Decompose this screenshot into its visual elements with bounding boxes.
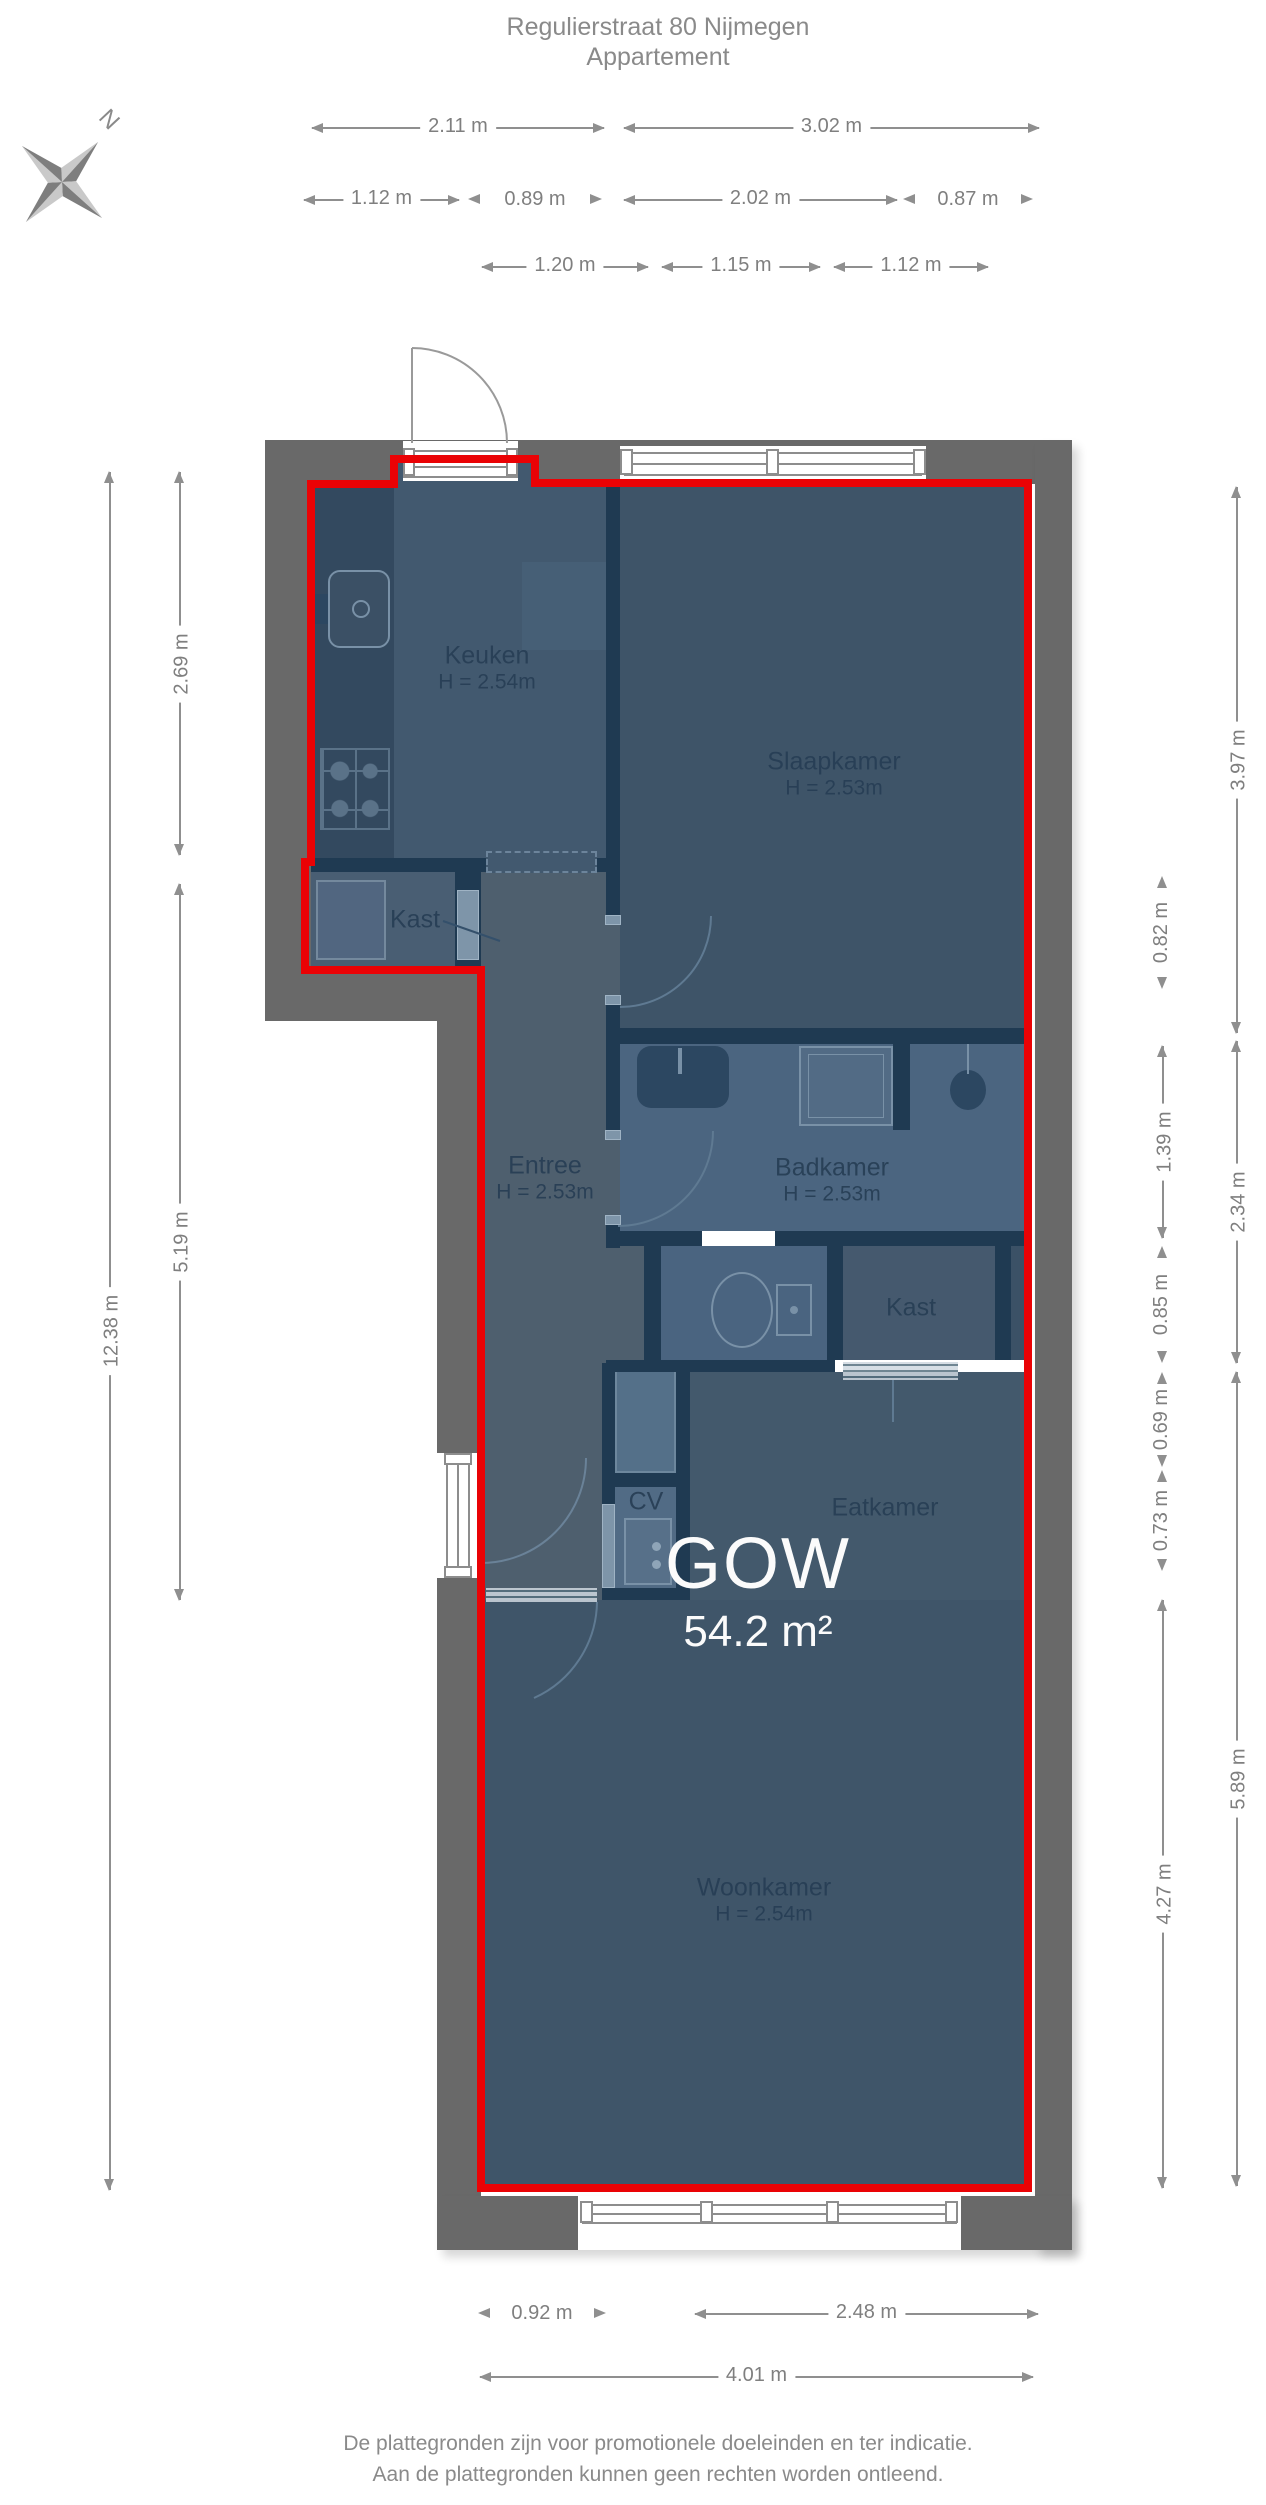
dim-bottom-4-01: 4.01 m bbox=[480, 2376, 1033, 2378]
closet-door bbox=[602, 1504, 615, 1588]
wall-step-block bbox=[265, 966, 481, 1021]
side-door-post-bottom bbox=[444, 1566, 472, 1578]
woonkamer-door-sill bbox=[486, 1588, 597, 1602]
pendant-lamp bbox=[950, 1070, 986, 1110]
page-subtitle: Appartement bbox=[0, 42, 1266, 72]
wall-badkamer-bottom-right bbox=[775, 1231, 1028, 1246]
slaapkamer-door-jamb bbox=[605, 915, 621, 925]
dim-left-12-38: 12.38 m bbox=[109, 472, 111, 2190]
wall-keuken-slaapkamer bbox=[606, 484, 620, 858]
dim-right-3-97: 3.97 m bbox=[1236, 487, 1238, 1033]
label-eatkamer: Eatkamer bbox=[832, 1494, 939, 1523]
title-block: Regulierstraat 80 Nijmegen Appartement bbox=[0, 12, 1266, 72]
woonkamer-window-post4 bbox=[945, 2201, 958, 2223]
entrance-door-sill bbox=[403, 450, 518, 478]
badkamer-door-jamb bbox=[605, 1130, 621, 1140]
kast1-shelf bbox=[316, 880, 386, 960]
keuken-passage-dashed bbox=[486, 851, 597, 873]
wall-left-lower bbox=[437, 1021, 481, 2250]
dim-top-0-89: 0.89 m bbox=[468, 189, 602, 209]
kast1-door bbox=[457, 890, 479, 960]
gow-area-label: GOW 54.2 m² bbox=[665, 1523, 851, 1657]
dim-top-2-11: 2.11 m bbox=[312, 127, 604, 129]
slaapkamer-window-post3 bbox=[913, 449, 926, 475]
dim-left-5-19: 5.19 m bbox=[179, 884, 181, 1600]
wall-slaapkamer-badkamer bbox=[606, 1028, 1028, 1044]
dim-bottom-2-48: 2.48 m bbox=[695, 2313, 1038, 2315]
dim-top-1-15: 1.15 m bbox=[662, 266, 820, 268]
dim-right-0-73: 0.73 m bbox=[1151, 1470, 1173, 1571]
side-door-post-top bbox=[444, 1453, 472, 1465]
slaapkamer-door-gap bbox=[606, 915, 620, 1005]
shower-faucet bbox=[678, 1048, 682, 1074]
dim-right-2-34: 2.34 m bbox=[1236, 1041, 1238, 1363]
label-keuken: Keuken H = 2.54m bbox=[438, 642, 535, 695]
woonkamer-window-glazing bbox=[582, 2204, 957, 2224]
badkamer-door-jamb2 bbox=[605, 1215, 621, 1225]
dim-top-1-12a: 1.12 m bbox=[304, 199, 459, 201]
label-cv: CV bbox=[629, 1488, 664, 1517]
dim-top-3-02: 3.02 m bbox=[624, 127, 1039, 129]
entrance-door-post-left bbox=[403, 448, 415, 476]
wall-wc-left bbox=[644, 1246, 661, 1372]
kitchen-faucet bbox=[314, 594, 328, 624]
dim-right-4-27: 4.27 m bbox=[1162, 1600, 1164, 2188]
cv-boiler-dot1 bbox=[652, 1542, 661, 1551]
dim-top-0-87: 0.87 m bbox=[903, 189, 1033, 209]
woonkamer-window-post3 bbox=[826, 2201, 839, 2223]
compass-north-label: N bbox=[93, 104, 125, 136]
label-kast2: Kast bbox=[886, 1294, 936, 1323]
wall-right bbox=[1035, 440, 1072, 2250]
pendant-lamp-cord bbox=[967, 1044, 969, 1074]
footer-line2: Aan de plattegronden kunnen geen rechten… bbox=[0, 2459, 1266, 2490]
dim-top-1-20: 1.20 m bbox=[482, 266, 648, 268]
wall-wc-kast2 bbox=[827, 1246, 843, 1360]
kast2-door-sill bbox=[843, 1362, 958, 1380]
dim-right-0-82: 0.82 m bbox=[1151, 876, 1173, 989]
wall-keuken-bottom-right bbox=[597, 858, 620, 872]
side-door-glazing bbox=[446, 1457, 470, 1574]
woonkamer-window-post2 bbox=[700, 2201, 713, 2223]
slaapkamer-door-jamb2 bbox=[605, 995, 621, 1005]
dim-right-5-89: 5.89 m bbox=[1236, 1372, 1238, 2186]
kitchen-unit-block bbox=[522, 562, 609, 650]
entrance-door-post-right bbox=[506, 448, 518, 476]
label-kast1: Kast bbox=[390, 906, 440, 935]
shower bbox=[637, 1046, 729, 1108]
dim-top-1-12b: 1.12 m bbox=[834, 266, 988, 268]
dim-top-2-02: 2.02 m bbox=[624, 199, 897, 201]
toilet-tank-button bbox=[790, 1306, 798, 1314]
label-slaapkamer: Slaapkamer H = 2.53m bbox=[767, 748, 900, 801]
wall-badkamer-stub bbox=[893, 1044, 910, 1130]
wall-wc-bottom bbox=[606, 1360, 835, 1372]
footer-line1: De plattegronden zijn voor promotionele … bbox=[0, 2428, 1266, 2459]
wall-closet-divider bbox=[602, 1473, 690, 1487]
dim-right-0-85: 0.85 m bbox=[1151, 1246, 1173, 1363]
wall-keuken-bottom-left bbox=[311, 858, 486, 872]
slaapkamer-window-post1 bbox=[620, 449, 633, 475]
kitchen-hob bbox=[320, 748, 390, 830]
wall-kast2-niche bbox=[995, 1246, 1011, 1360]
dim-right-1-39: 1.39 m bbox=[1162, 1046, 1164, 1238]
wall-left-upper bbox=[265, 440, 311, 1021]
woonkamer-window-post1 bbox=[580, 2201, 593, 2223]
entree-patch bbox=[620, 1246, 644, 1372]
toilet-bowl bbox=[711, 1272, 773, 1348]
label-entree: Entree H = 2.53m bbox=[496, 1152, 593, 1205]
dim-right-0-69: 0.69 m bbox=[1151, 1372, 1173, 1467]
kitchen-sink-drain bbox=[352, 600, 370, 618]
floorplan-page: Regulierstraat 80 Nijmegen Appartement bbox=[0, 0, 1266, 2505]
compass-rose bbox=[0, 106, 138, 259]
footer-disclaimer: De plattegronden zijn voor promotionele … bbox=[0, 2428, 1266, 2490]
room-entree bbox=[481, 872, 620, 1600]
page-title: Regulierstraat 80 Nijmegen bbox=[0, 12, 1266, 42]
wall-badkamer-bottom-left bbox=[620, 1231, 702, 1246]
entrance-door-swing bbox=[412, 348, 507, 443]
label-woonkamer: Woonkamer H = 2.54m bbox=[697, 1874, 831, 1927]
bath-basin-inner bbox=[808, 1054, 884, 1118]
label-badkamer: Badkamer H = 2.53m bbox=[775, 1154, 889, 1207]
cv-boiler-dot2 bbox=[652, 1560, 661, 1569]
badkamer-door-gap bbox=[606, 1130, 620, 1225]
slaapkamer-window-post2 bbox=[766, 449, 779, 475]
room-niche bbox=[1011, 1246, 1028, 1360]
closet-upper bbox=[615, 1363, 676, 1473]
dim-bottom-0-92: 0.92 m bbox=[478, 2303, 606, 2323]
dim-left-2-69: 2.69 m bbox=[179, 472, 181, 855]
